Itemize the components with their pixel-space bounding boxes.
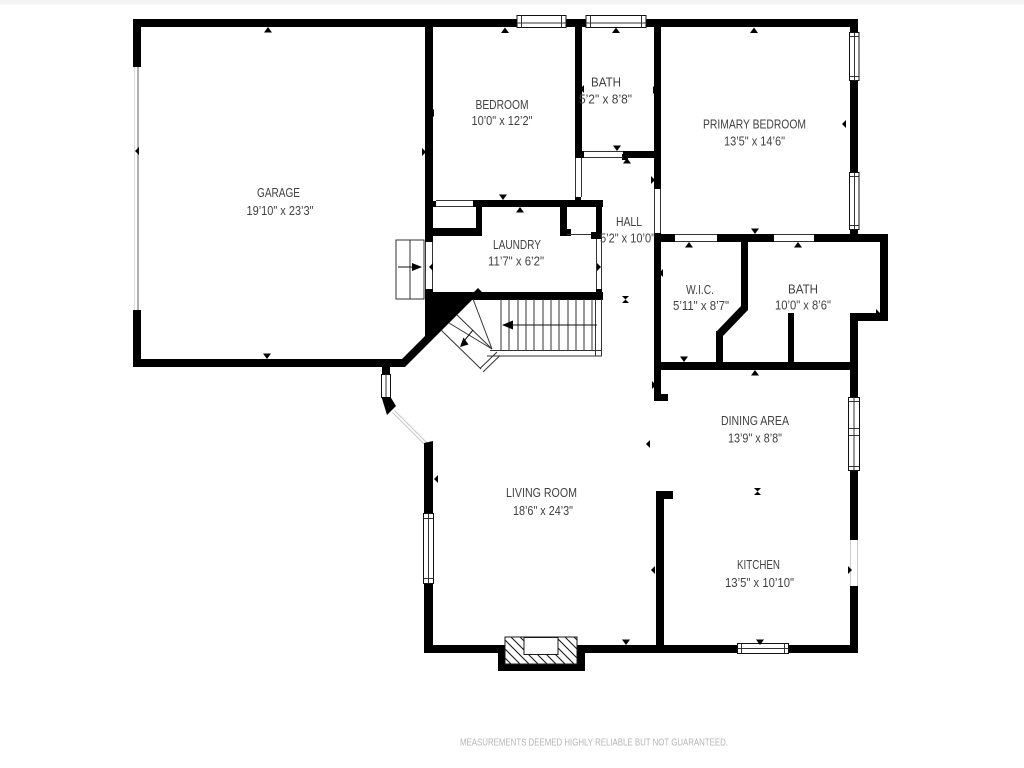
svg-text:GARAGE: GARAGE: [257, 185, 300, 200]
svg-text:HALL: HALL: [616, 214, 642, 229]
svg-text:18’6" x 24’3": 18’6" x 24’3": [513, 503, 573, 518]
svg-text:5’2" x 8’8": 5’2" x 8’8": [579, 92, 632, 107]
svg-text:10’0" x 8’6": 10’0" x 8’6": [775, 298, 831, 313]
svg-text:BATH: BATH: [591, 75, 621, 90]
svg-text:13’5" x 14’6": 13’5" x 14’6": [724, 134, 785, 149]
svg-text:MEASUREMENTS DEEMED HIGHLY REL: MEASUREMENTS DEEMED HIGHLY RELIABLE BUT …: [460, 738, 728, 749]
svg-text:5’11" x 8’7": 5’11" x 8’7": [673, 298, 729, 313]
svg-text:10’0" x 12’2": 10’0" x 12’2": [472, 113, 533, 128]
svg-text:19’10" x 23’3": 19’10" x 23’3": [247, 203, 314, 218]
svg-text:5’2" x 10’0": 5’2" x 10’0": [600, 231, 655, 246]
svg-text:LAUNDRY: LAUNDRY: [493, 237, 541, 252]
svg-text:BATH: BATH: [788, 282, 818, 297]
svg-text:DINING AREA: DINING AREA: [721, 413, 789, 428]
svg-text:KITCHEN: KITCHEN: [737, 557, 780, 572]
svg-text:13’9" x 8’8": 13’9" x 8’8": [728, 431, 782, 446]
svg-text:LIVING ROOM: LIVING ROOM: [506, 485, 577, 500]
svg-text:PRIMARY BEDROOM: PRIMARY BEDROOM: [703, 117, 806, 132]
svg-text:11’7" x 6’2": 11’7" x 6’2": [488, 254, 544, 269]
svg-text:13’5" x 10’10": 13’5" x 10’10": [725, 575, 794, 590]
svg-text:BEDROOM: BEDROOM: [476, 97, 529, 112]
svg-text:W.I.C.: W.I.C.: [686, 282, 714, 297]
